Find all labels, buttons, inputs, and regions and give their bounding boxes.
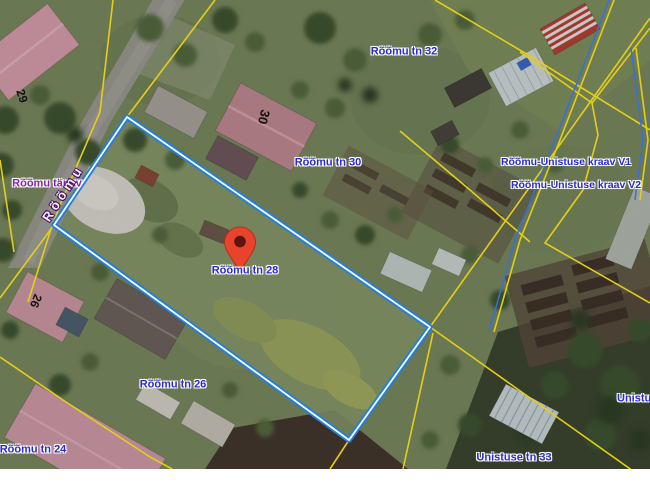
parcel-label-roomu-tn-24: Rõõmu tn 24 <box>0 445 66 456</box>
parcel-label-roomu-tn-30: Rõõmu tn 30 <box>295 158 362 169</box>
satellite-map-viewport[interactable]: Rõõmu tn 32 Rõõmu tn 30 Rõõmu tn 28 Rõõm… <box>0 0 650 469</box>
parcel-label-unistuse-clipped: Unistuse <box>617 394 650 405</box>
parcel-label-unistuse-tn-33: Unistuse tn 33 <box>476 453 551 464</box>
parcel-label-roomu-tn-28: Rõõmu tn 28 <box>212 266 279 277</box>
bottom-white-strip <box>0 469 650 487</box>
house-number-30: 30 <box>256 108 272 125</box>
parcel-label-roomu-tn-26: Rõõmu tn 26 <box>140 380 207 391</box>
label-kraav-v2: Rõõmu-Unistuse kraav V2 <box>511 180 641 191</box>
label-kraav-v1: Rõõmu-Unistuse kraav V1 <box>501 157 631 168</box>
map-screenshot: Rõõmu tn 32 Rõõmu tn 30 Rõõmu tn 28 Rõõm… <box>0 0 650 487</box>
satellite-map-canvas <box>0 0 650 469</box>
parcel-label-roomu-tn-32: Rõõmu tn 32 <box>371 47 438 58</box>
